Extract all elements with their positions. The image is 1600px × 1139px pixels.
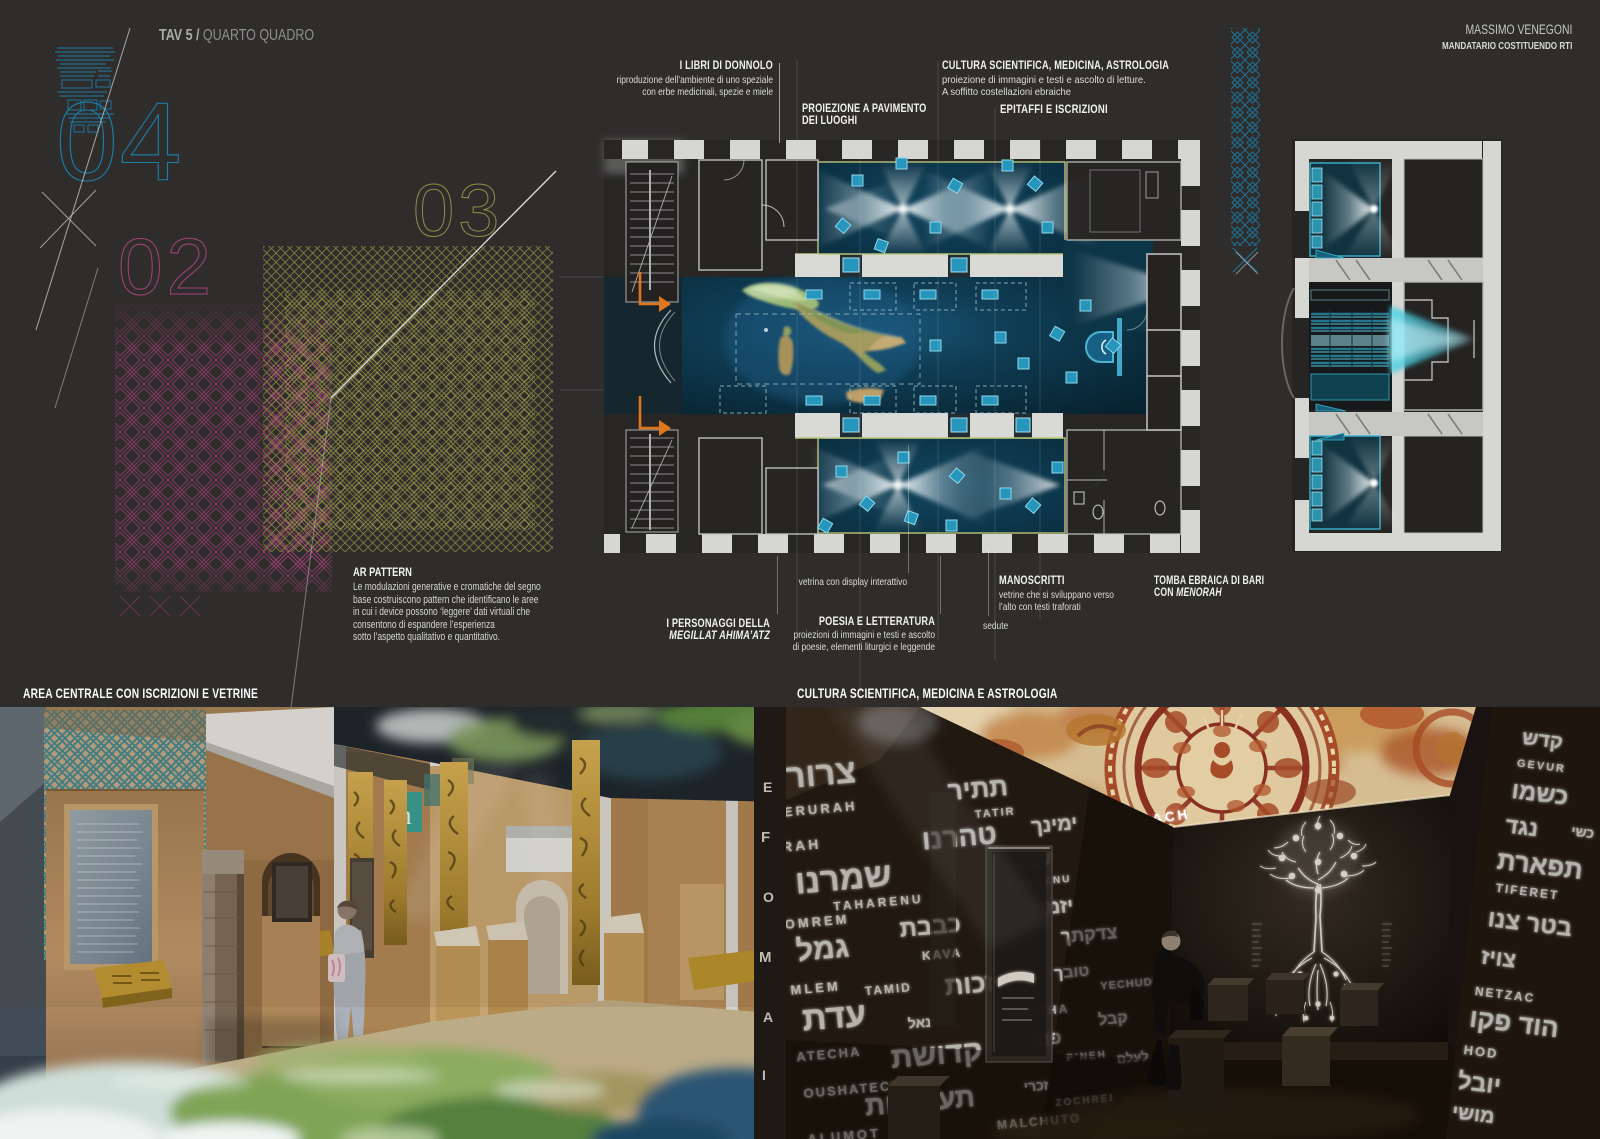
svg-text:F: F [761, 829, 770, 846]
svg-text:A: A [763, 1009, 773, 1025]
svg-text:02: 02 [118, 222, 215, 311]
svg-text:03: 03 [413, 169, 503, 252]
svg-text:O: O [763, 889, 774, 905]
svg-text:04: 04 [56, 80, 183, 204]
svg-text:I: I [762, 1067, 766, 1083]
svg-text:E: E [763, 779, 772, 795]
svg-text:M: M [759, 949, 772, 966]
